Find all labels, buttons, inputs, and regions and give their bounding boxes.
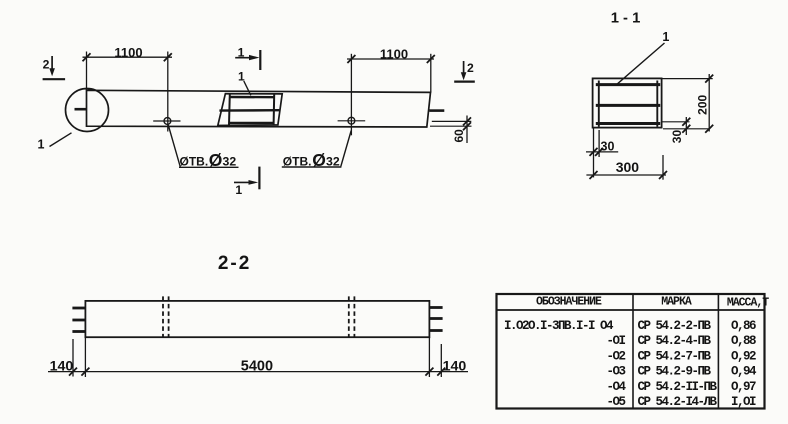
svg-text:-О2: -О2 [606,349,625,363]
svg-text:Ø: Ø [312,150,326,170]
svg-text:МАССА,Т: МАССА,Т [727,297,769,310]
svg-text:Ø: Ø [209,150,223,170]
svg-text:I,ОI: I,ОI [731,395,756,409]
svg-text:2-2: 2-2 [218,253,251,274]
svg-text:О,88: О,88 [731,334,756,348]
svg-text:I.О2О.I-3ПВ.I-I О4: I.О2О.I-3ПВ.I-I О4 [504,319,614,333]
svg-text:-О3: -О3 [606,365,625,379]
svg-text:СР 54.2-9-ПВ: СР 54.2-9-ПВ [638,365,712,379]
svg-text:-ОI: -ОI [606,334,625,348]
svg-text:СР 54.2-2-ПВ: СР 54.2-2-ПВ [638,319,712,333]
svg-text:300: 300 [616,159,640,175]
svg-text:-О4: -О4 [606,380,626,394]
svg-text:2: 2 [467,61,474,75]
svg-text:2: 2 [43,57,50,71]
svg-text:1100: 1100 [380,47,408,62]
svg-text:О,92: О,92 [731,349,756,363]
svg-text:1: 1 [238,70,245,84]
svg-text:140: 140 [443,358,467,374]
svg-text:О,97: О,97 [731,380,756,394]
svg-text:СР 54.2-7-ПВ: СР 54.2-7-ПВ [638,349,712,363]
svg-text:32: 32 [223,155,237,169]
svg-text:О,94: О,94 [731,365,757,379]
svg-text:140: 140 [50,358,74,374]
svg-text:ØТВ.: ØТВ. [180,155,209,169]
svg-text:1: 1 [38,138,45,152]
svg-text:СР 54.2-4-ПВ: СР 54.2-4-ПВ [638,334,712,348]
svg-text:-О5: -О5 [606,395,625,409]
svg-text:1: 1 [235,183,242,197]
svg-text:СР 54.2-II-ПВ: СР 54.2-II-ПВ [638,380,718,394]
svg-text:200: 200 [696,94,710,114]
svg-text:1: 1 [662,30,669,44]
svg-text:ОБОЗНАЧЕНИЕ: ОБОЗНАЧЕНИЕ [536,296,602,309]
svg-text:32: 32 [326,155,340,169]
svg-text:30: 30 [670,130,684,144]
svg-text:30: 30 [601,140,615,154]
svg-text:ØТВ.: ØТВ. [283,154,312,168]
svg-text:СР 54.2-I4-ЛВ: СР 54.2-I4-ЛВ [638,395,718,409]
svg-text:5400: 5400 [241,359,273,375]
svg-text:1100: 1100 [114,45,142,60]
svg-text:МАРКА: МАРКА [661,296,692,309]
svg-text:60: 60 [452,129,466,143]
svg-text:1 - 1: 1 - 1 [611,10,641,26]
svg-text:О,86: О,86 [731,319,756,333]
